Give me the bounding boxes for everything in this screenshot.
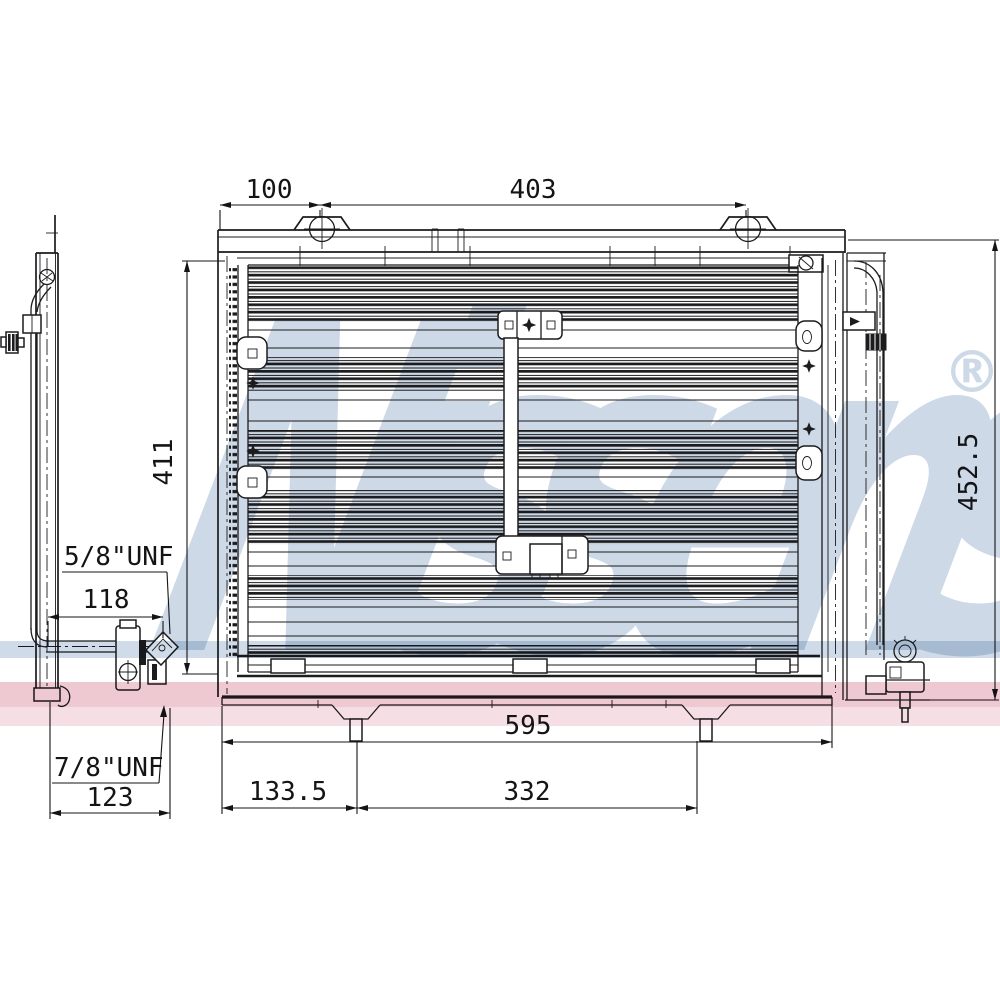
logo-band-blue <box>0 641 1000 658</box>
logo-band-pink <box>0 682 1000 707</box>
technical-drawing-svg: Nissens ® <box>0 0 1000 1000</box>
dim-label-118: 118 <box>83 585 130 615</box>
dim-label-5-8-unf: 5/8"UNF <box>64 542 174 572</box>
dim-label-452-5: 452.5 <box>954 433 984 511</box>
dim-label-403: 403 <box>510 175 557 205</box>
logo-band-pink-light <box>0 707 1000 726</box>
center-strap <box>504 338 518 539</box>
dim-label-332: 332 <box>504 777 551 807</box>
center-bracket-top <box>498 311 562 339</box>
dim-label-7-8-unf: 7/8"UNF <box>54 753 164 783</box>
dim-label-100: 100 <box>246 175 293 205</box>
left-fin-serration <box>229 268 237 660</box>
left-view-upper-fitting <box>1 315 41 353</box>
registered-trademark-icon: ® <box>943 338 1000 406</box>
logo-bands <box>0 641 1000 726</box>
dim-label-133-5: 133.5 <box>249 777 327 807</box>
dim-label-411: 411 <box>149 439 179 486</box>
dim-label-123: 123 <box>87 783 134 813</box>
center-bracket-bottom <box>496 536 588 579</box>
drawing-page: Nissens ® <box>0 0 1000 1000</box>
